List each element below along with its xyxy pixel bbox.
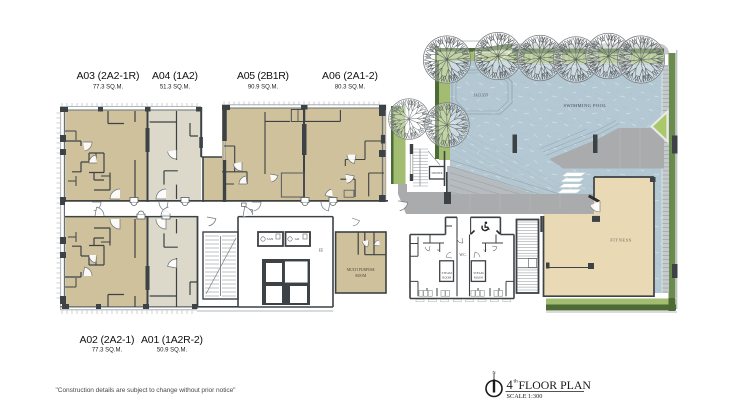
svg-text:MULTI PURPOSE: MULTI PURPOSE [347, 268, 376, 272]
svg-text:FITNESS: FITNESS [610, 238, 632, 243]
svg-text:SHOWER: SHOWER [432, 172, 443, 175]
svg-text:FLOOR PLAN: FLOOR PLAN [519, 378, 592, 392]
svg-text:77.3 SQ.M.: 77.3 SQ.M. [93, 85, 124, 91]
svg-text:W.C.: W.C. [459, 253, 466, 257]
svg-text:A06 (2A1-2): A06 (2A1-2) [322, 70, 378, 82]
svg-text:90.9 SQ.M.: 90.9 SQ.M. [248, 85, 279, 91]
svg-text:A02 (2A2-1): A02 (2A2-1) [80, 334, 135, 346]
svg-text:A03 (2A2-1R): A03 (2A2-1R) [77, 70, 140, 82]
svg-text:77.3 SQ.M.: 77.3 SQ.M. [92, 348, 123, 354]
svg-text:"Construction details are subj: "Construction details are subject to cha… [56, 387, 237, 394]
svg-text:SCALE 1:300: SCALE 1:300 [507, 393, 543, 400]
svg-text:A01 (1A2R-2): A01 (1A2R-2) [141, 334, 203, 346]
svg-text:th: th [514, 379, 519, 385]
svg-text:SAN: SAN [267, 237, 274, 241]
svg-text:GR: GR [295, 237, 300, 241]
svg-text:JACUZZI: JACUZZI [474, 94, 489, 98]
svg-text:80.3 SQ.M.: 80.3 SQ.M. [335, 85, 366, 91]
svg-text:ROOM: ROOM [442, 275, 451, 279]
svg-text:51.3 SQ.M.: 51.3 SQ.M. [160, 85, 191, 91]
svg-text:ROOM: ROOM [355, 274, 367, 278]
svg-text:M: M [437, 248, 440, 252]
svg-text:4: 4 [507, 378, 514, 392]
svg-text:50.9 SQ.M.: 50.9 SQ.M. [157, 348, 188, 354]
svg-text:A05 (2B1R): A05 (2B1R) [237, 70, 289, 82]
svg-text:SWIMMING POOL: SWIMMING POOL [563, 103, 606, 108]
svg-text:A04 (1A2): A04 (1A2) [152, 70, 198, 82]
svg-text:ROOM: ROOM [474, 275, 483, 279]
